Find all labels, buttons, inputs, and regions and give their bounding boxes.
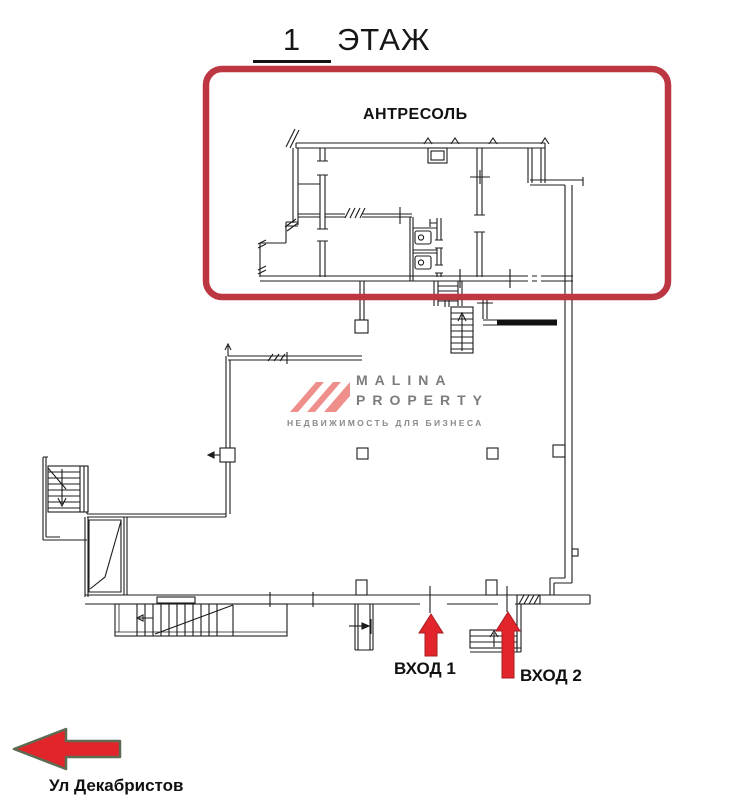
logo-name-line2: PROPERTY	[356, 392, 489, 408]
mezzanine-label: АНТРЕСОЛЬ	[363, 106, 468, 124]
floor-number: 1	[253, 22, 331, 63]
logo-name-line1: MALINA	[356, 372, 452, 388]
logo-tagline: НЕДВИЖИМОСТЬ ДЛЯ БИЗНЕСА	[287, 418, 484, 428]
entrance-2-label: ВХОД 2	[520, 666, 582, 686]
street-name-label: Ул Декабристов	[49, 776, 184, 796]
agency-watermark-logo: MALINA PROPERTY НЕДВИЖИМОСТЬ ДЛЯ БИЗНЕСА	[286, 371, 476, 431]
entrance-1-label: ВХОД 1	[394, 659, 456, 679]
mezzanine-plan	[258, 129, 583, 595]
page-title: 1ЭТАЖ	[253, 22, 431, 63]
street-arrow-icon	[14, 729, 120, 769]
ground-floor-plan	[43, 296, 590, 652]
floor-plan-page: 1ЭТАЖ АНТРЕСОЛЬ ВХОД 1 ВХОД 2 Ул Декабри…	[0, 0, 750, 800]
entrance-2-arrow-icon	[496, 612, 520, 678]
logo-mark-icon	[287, 373, 353, 415]
floor-word: ЭТАЖ	[337, 22, 431, 57]
entrance-1-arrow-icon	[419, 614, 443, 656]
